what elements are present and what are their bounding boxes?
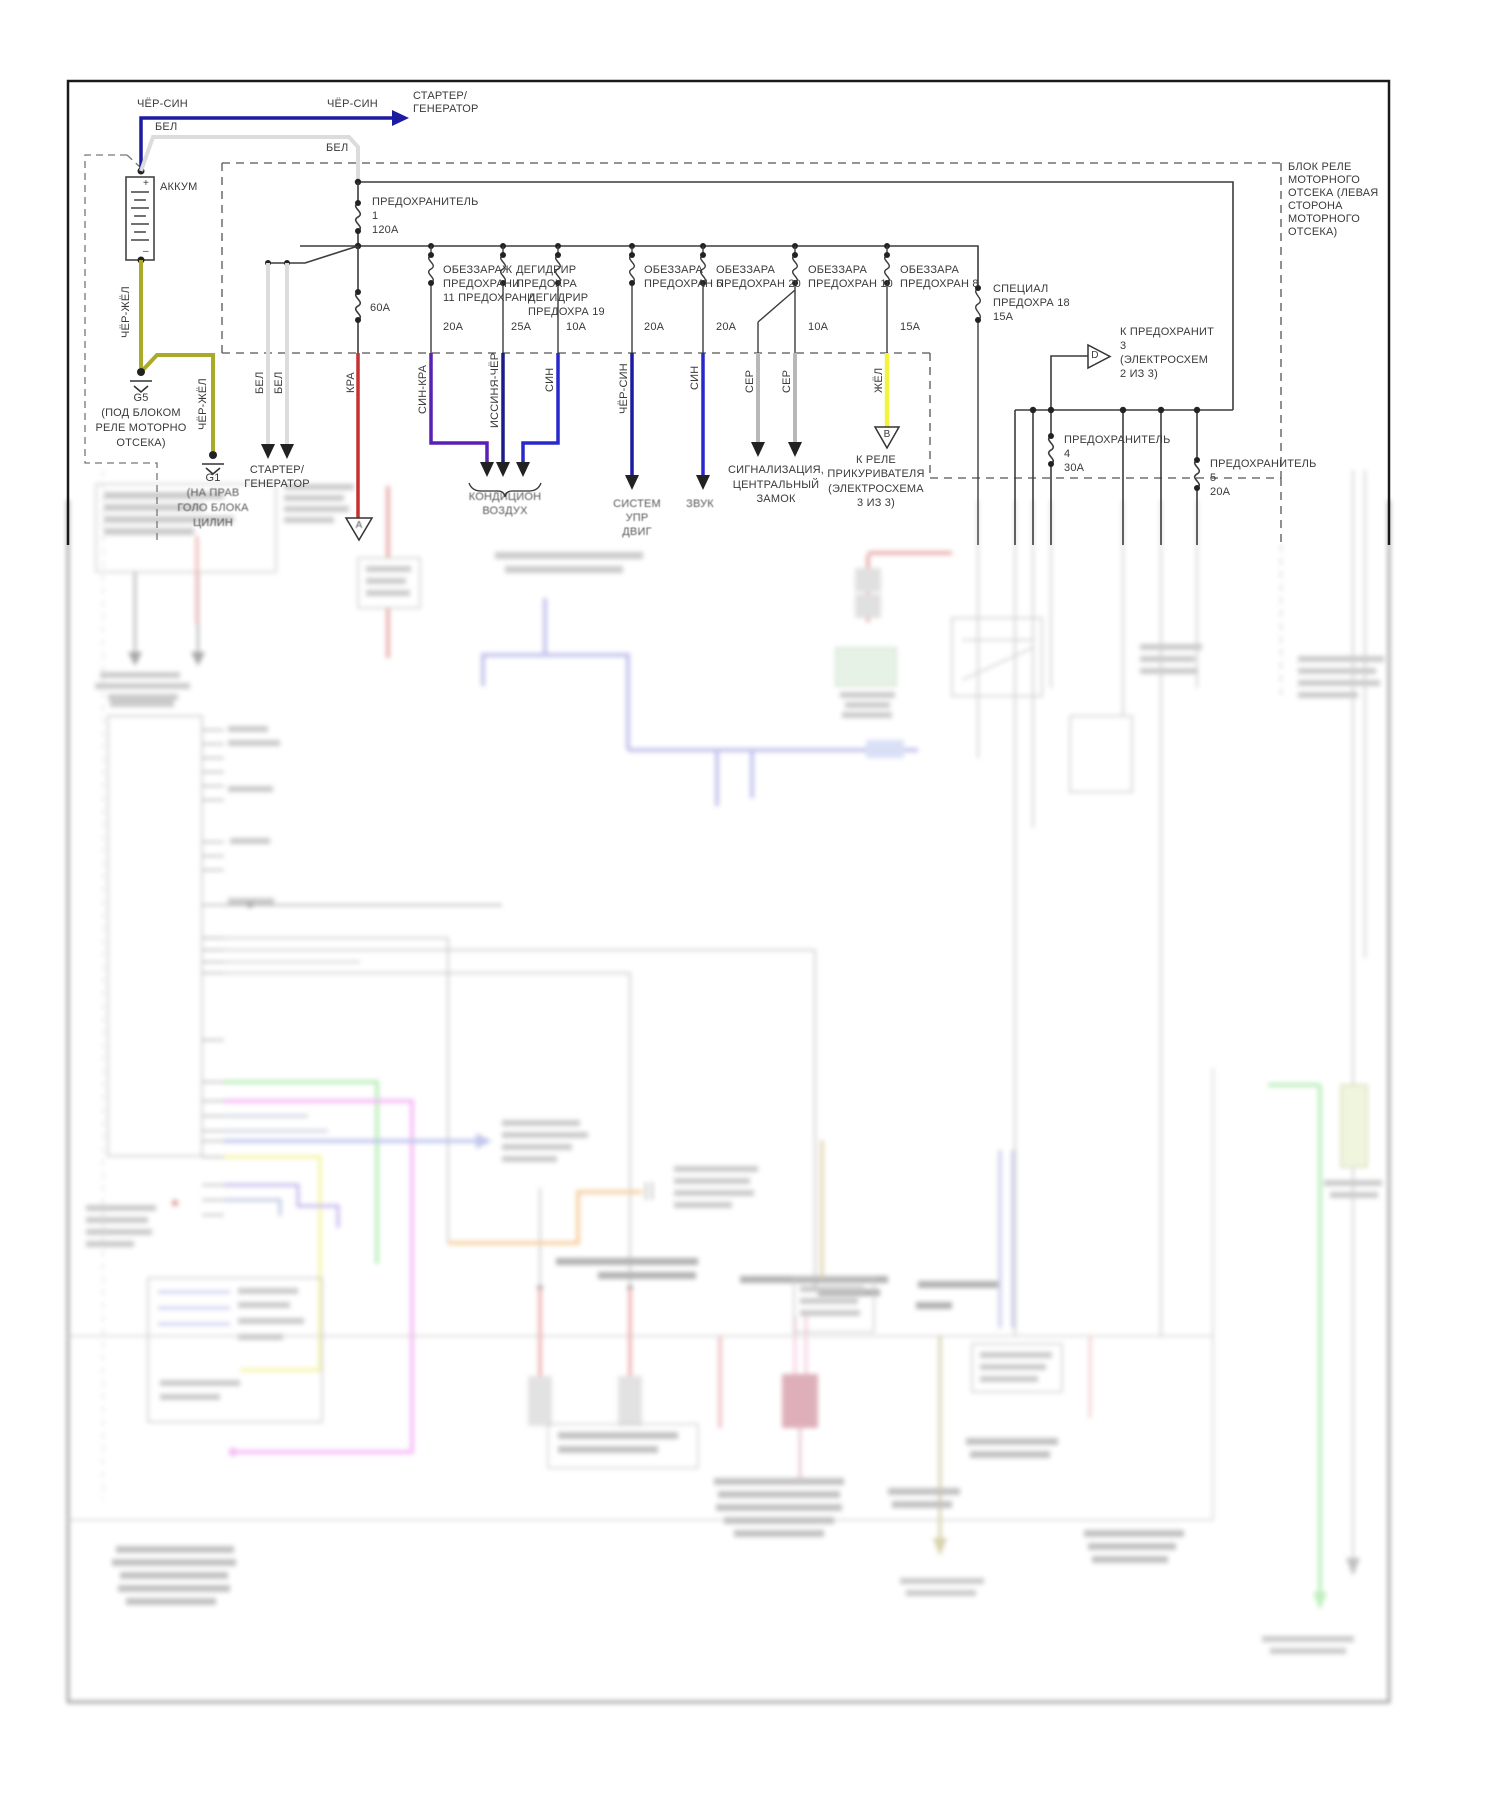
to-fuse3-label: 3 <box>1120 340 1126 352</box>
relay-box-title: МОТОРНОГО <box>1288 213 1360 225</box>
fuse-60a-amp: 60А <box>370 302 390 314</box>
wire-label-cher-zhel-b: ЧЁР-ЖЁЛ <box>197 378 209 430</box>
lighter-relay-label: К РЕЛЕ <box>856 454 896 466</box>
wire-label-cher-sin-c: ЧЁР-СИН <box>618 363 630 414</box>
arrow-right-icon <box>392 110 409 126</box>
lighter-relay-label: (ЭЛЕКТРОСХЕМА <box>828 483 924 495</box>
fuse-11-label: 11 ПРЕДОХРАНИ <box>443 292 535 304</box>
wire-label-ser-a: СЕР <box>744 370 756 393</box>
fuse-6-amp: 20А <box>644 321 664 333</box>
ground-g1-note: ЦИЛИН <box>193 517 233 529</box>
aircon-label: ВОЗДУХ <box>482 505 527 517</box>
to-fuse3-label: (ЭЛЕКТРОСХЕМ <box>1120 354 1208 366</box>
battery-plus-sign: + <box>143 178 149 190</box>
fuse-8-label: ОБЕЗЗАРА <box>900 264 959 276</box>
starter-top-label: ГЕНЕРАТОР <box>413 103 479 115</box>
ground-g5-note: ОТСЕКА) <box>116 437 165 449</box>
alarm-label: ЦЕНТРАЛЬНЫЙ <box>733 479 820 491</box>
fuse-1-icon <box>355 182 361 246</box>
connector-a-letter: А <box>356 520 363 532</box>
ground-g5-icon <box>130 368 152 392</box>
arrow-down-icon <box>625 475 639 490</box>
arrow-down-icon <box>496 462 510 477</box>
connector-d-branch <box>1051 356 1088 410</box>
aircon-label: КОНДИЦИОН <box>469 491 541 503</box>
fuse-12-label: ПРЕДОХРА <box>516 278 577 290</box>
ground-g1-note: (НА ПРАВ <box>187 487 240 499</box>
fuse-12-amp: 25А <box>511 321 531 333</box>
relay-box-title: МОТОРНОГО <box>1288 174 1360 186</box>
fuse-19-label: ПРЕДОХРА 19 <box>528 306 605 318</box>
fuse-8-label: ПРЕДОХРАН 8 <box>900 278 979 290</box>
fuse-1-number: 1 <box>372 210 378 222</box>
to-fuse3-label: К ПРЕДОХРАНИТ <box>1120 326 1214 338</box>
wire-label-issinya-cher: ИССИНЯ-ЧЁР <box>489 353 501 428</box>
fuse-11-label: ПРЕДОХРАНИ <box>443 278 520 290</box>
wire-cher-sin-top <box>141 110 409 171</box>
ground-g5-note: (ПОД БЛОКОМ <box>101 407 181 419</box>
fuse-8-icon <box>884 243 890 353</box>
alarm-label: СИГНАЛИЗАЦИЯ, <box>728 464 824 476</box>
fuse-18-amp: 15А <box>993 311 1013 323</box>
arrow-down-icon <box>261 444 275 459</box>
to-fuse3-label: 2 ИЗ 3) <box>1120 368 1158 380</box>
fuse-10-amp: 10А <box>808 321 828 333</box>
battery-icon <box>126 168 154 264</box>
fuse-60a-icon <box>355 246 361 353</box>
audio-label: ЗВУК <box>686 498 714 510</box>
fuse-4-number: 4 <box>1064 448 1070 460</box>
fuse-5-label: ПРЕДОХРАНИТЕЛЬ <box>1210 458 1317 470</box>
fuse-12-label: ДЕГИДРИР <box>516 264 576 276</box>
relay-box-title: СТОРОНА <box>1288 200 1343 212</box>
starter-bottom-label: ГЕНЕРАТОР <box>244 478 310 490</box>
wiring-diagram-page: ЧЁР-СИН ЧЁР-СИН СТАРТЕР/ ГЕНЕРАТОР БЕЛ Б… <box>0 0 1500 1804</box>
lighter-relay-label: ПРИКУРИВАТЕЛЯ <box>827 468 924 480</box>
fuse-8-amp: 15А <box>900 321 920 333</box>
wire-label-cher-sin-a: ЧЁР-СИН <box>137 98 188 110</box>
wire-label-zhel: ЖЁЛ <box>873 368 885 393</box>
fuse-18-label: ПРЕДОХРА 18 <box>993 297 1070 309</box>
ground-g1-note: ГОЛО БЛОКА <box>177 502 248 514</box>
fuse-5-amp: 20А <box>1210 486 1230 498</box>
fuse-4-label: ПРЕДОХРАНИТЕЛЬ <box>1064 434 1171 446</box>
arrow-down-icon <box>280 444 294 459</box>
fuse-20-amp: 20А <box>716 321 736 333</box>
wire-label-cher-sin-b: ЧЁР-СИН <box>327 98 378 110</box>
fuse-20-label: ПРЕДОХРАН 20 <box>716 278 801 290</box>
fuse-5-number: 5 <box>1210 472 1216 484</box>
fuse-6-label: ПРЕДОХРАН 6 <box>644 278 723 290</box>
wire-label-kra: КРА <box>345 372 357 393</box>
fuse-4-amp: 30А <box>1064 462 1084 474</box>
engine-control-label: УПР <box>626 512 649 524</box>
wire-label-bel-b: БЕЛ <box>326 142 348 154</box>
fuse-11-label: ОБЕЗЗАРАЖ <box>443 264 512 276</box>
fuse-11-amp: 20А <box>443 321 463 333</box>
fuse-6-icon <box>629 243 635 353</box>
wire-label-sin-b: СИН <box>689 366 701 390</box>
ground-g1-icon <box>202 451 224 474</box>
arrow-down-icon <box>751 442 765 457</box>
fuse-20-icon <box>700 243 706 353</box>
ground-g1-label: G1 <box>205 472 220 484</box>
engine-control-label: ДВИГ <box>622 526 651 538</box>
fuse-6-label: ОБЕЗЗАРА <box>644 264 703 276</box>
fuse-1-amp: 120А <box>372 224 399 236</box>
fuse-10-icon <box>758 243 798 353</box>
fuse-1-label: ПРЕДОХРАНИТЕЛЬ <box>372 196 479 208</box>
relay-box-title: ОТСЕКА (ЛЕВАЯ <box>1288 187 1378 199</box>
wire-label-sin-kra: СИН-КРА <box>417 365 429 414</box>
fuse-19-label: ДЕГИДРИР <box>528 292 588 304</box>
ground-g5-label: G5 <box>133 392 148 404</box>
connector-b-letter: В <box>884 429 891 441</box>
arrow-down-icon <box>788 442 802 457</box>
wire-label-cher-zhel-a: ЧЁР-ЖЁЛ <box>120 286 132 338</box>
wire-label-ser-b: СЕР <box>781 370 793 393</box>
wire-label-bel-a: БЕЛ <box>155 121 177 133</box>
starter-top-label: СТАРТЕР/ <box>413 90 467 102</box>
relay-box-title: ОТСЕКА) <box>1288 226 1337 238</box>
ground-g5-note: РЕЛЕ МОТОРНО <box>95 422 186 434</box>
fuse-20-label: ОБЕЗЗАРА <box>716 264 775 276</box>
fuse-18-label: СПЕЦИАЛ <box>993 283 1048 295</box>
wire-label-bel-c: БЕЛ <box>254 372 266 394</box>
connector-d-letter: D <box>1091 350 1098 362</box>
battery-label: АККУМ <box>160 181 197 193</box>
fuse-19-amp: 10А <box>566 321 586 333</box>
fuse-10-label: ОБЕЗЗАРА <box>808 264 867 276</box>
arrow-down-icon <box>516 462 530 477</box>
starter-bottom-label: СТАРТЕР/ <box>250 464 304 476</box>
wire-label-bel-d: БЕЛ <box>273 372 285 394</box>
alarm-label: ЗАМОК <box>756 493 795 505</box>
battery-minus-sign: – <box>143 246 149 258</box>
relay-box-title: БЛОК РЕЛЕ <box>1288 161 1352 173</box>
arrow-down-icon <box>480 462 494 477</box>
arrow-down-icon <box>696 475 710 490</box>
fuse-11-icon <box>428 243 434 353</box>
engine-control-label: СИСТЕМ <box>613 498 661 510</box>
wire-sin-kra <box>431 353 487 463</box>
lighter-relay-label: 3 ИЗ 3) <box>857 497 895 509</box>
wire-label-sin-a: СИН <box>544 368 556 392</box>
fuse-10-label: ПРЕДОХРАН 10 <box>808 278 893 290</box>
fuse-18-icon <box>975 285 981 545</box>
